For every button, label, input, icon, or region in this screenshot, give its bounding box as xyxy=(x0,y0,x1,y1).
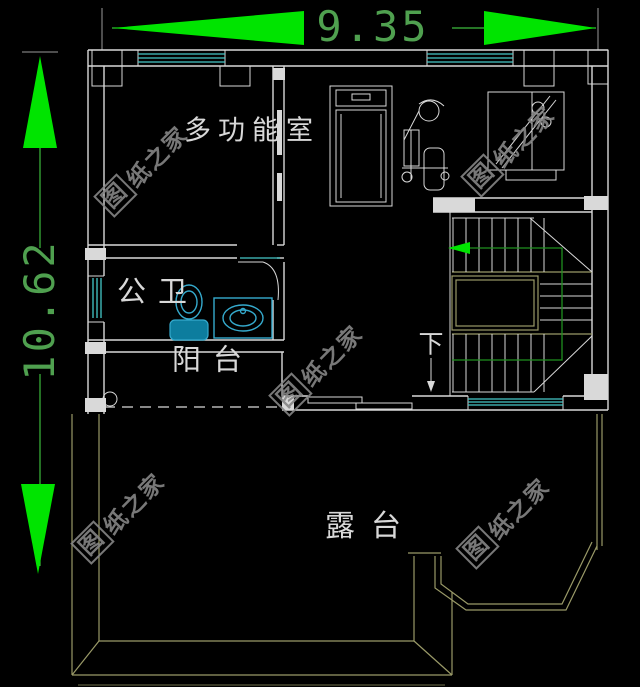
room-label-terrace: 露台 xyxy=(325,512,417,542)
wash-basin-icon xyxy=(214,298,272,338)
stairs-down-label: 下 xyxy=(418,332,443,357)
exercise-bike-icon xyxy=(402,100,449,190)
balcony-edge xyxy=(103,392,285,407)
left-dimension-value: 10.62 xyxy=(19,239,61,380)
window-bottom xyxy=(468,399,563,405)
stair-treads-bottom xyxy=(453,334,544,392)
treadmill-icon xyxy=(330,86,392,206)
terrace-outline xyxy=(72,414,602,685)
room-label-multi-function: 多功能室 xyxy=(184,118,320,145)
dimension-arrow-up-icon xyxy=(23,56,57,148)
down-arrow-icon xyxy=(427,358,435,392)
dimension-arrow-left-icon xyxy=(112,11,304,45)
stair-treads-right xyxy=(540,284,592,320)
window-top-left xyxy=(138,54,225,62)
window-top-right xyxy=(427,54,513,62)
floor-plan: 9.35 10.62 多功能室 公卫 阳台 露台 下 图纸之家 图纸之家 图纸之… xyxy=(0,0,640,687)
u-shaped-staircase-icon xyxy=(427,198,608,396)
window-left-bathroom xyxy=(93,278,101,318)
room-label-bathroom: 公卫 xyxy=(117,278,199,307)
top-dimension-value: 9.35 xyxy=(316,6,429,48)
stair-handrail xyxy=(452,248,562,360)
sliding-door-icon xyxy=(308,397,412,409)
dimension-arrow-down-icon xyxy=(21,484,55,574)
room-label-balcony: 阳台 xyxy=(172,346,254,375)
stair-direction-arrow-icon xyxy=(448,242,470,254)
door-swing-icon xyxy=(238,262,278,300)
dimension-arrow-right-icon xyxy=(484,11,596,45)
